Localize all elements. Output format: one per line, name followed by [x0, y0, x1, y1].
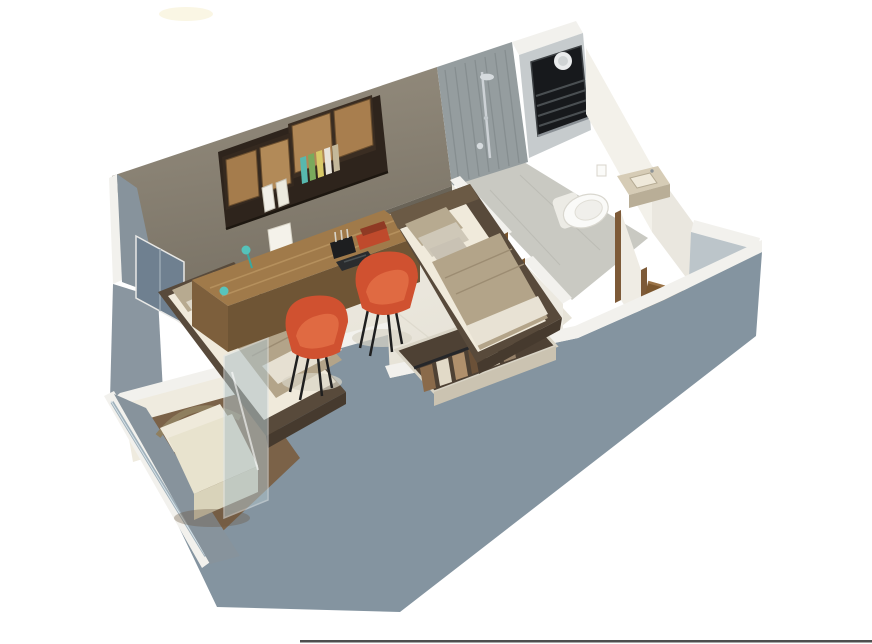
- light-switch: [597, 165, 606, 176]
- shower-valve: [484, 116, 488, 120]
- door-jamb: [615, 210, 621, 303]
- bottom-border-artifact: [300, 640, 872, 643]
- light-smudge: [159, 7, 213, 21]
- floorplan-render: [0, 0, 872, 644]
- faucet: [650, 169, 653, 172]
- cabinet-door: [226, 150, 259, 206]
- rain-shower-head: [480, 74, 494, 81]
- hand-shower: [477, 143, 483, 149]
- teal-ornament: [220, 287, 229, 296]
- background: [159, 7, 213, 21]
- floorplan-svg: [0, 0, 872, 644]
- shower-area: [437, 42, 528, 186]
- desk-chair-right: [352, 252, 418, 356]
- desk-chair-left: [282, 296, 348, 400]
- desk-lamp: [242, 246, 251, 255]
